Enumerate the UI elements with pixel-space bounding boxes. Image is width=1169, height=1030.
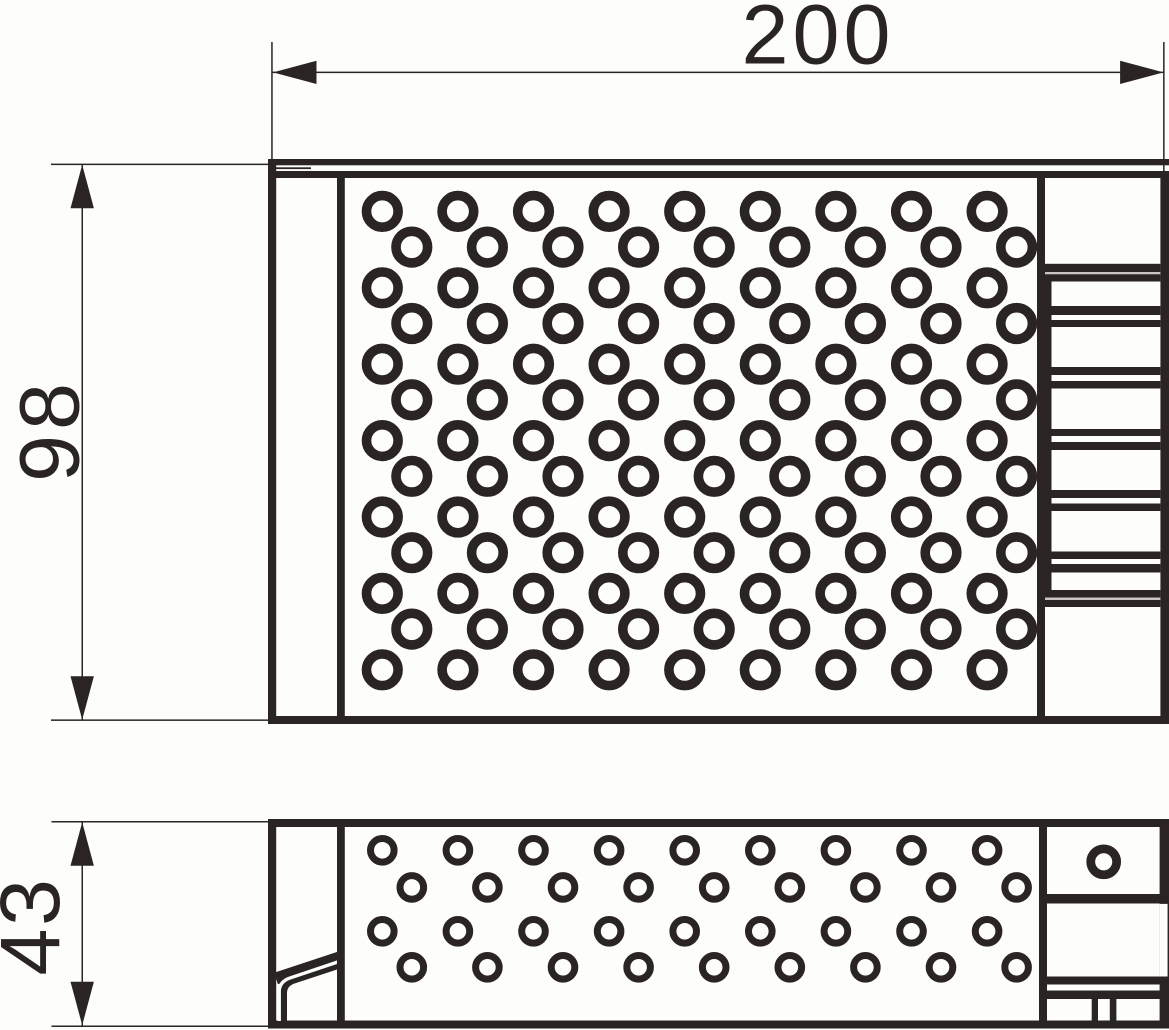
svg-text:200: 200 xyxy=(742,0,895,82)
svg-text:98: 98 xyxy=(3,378,97,482)
svg-text:43: 43 xyxy=(0,877,77,976)
